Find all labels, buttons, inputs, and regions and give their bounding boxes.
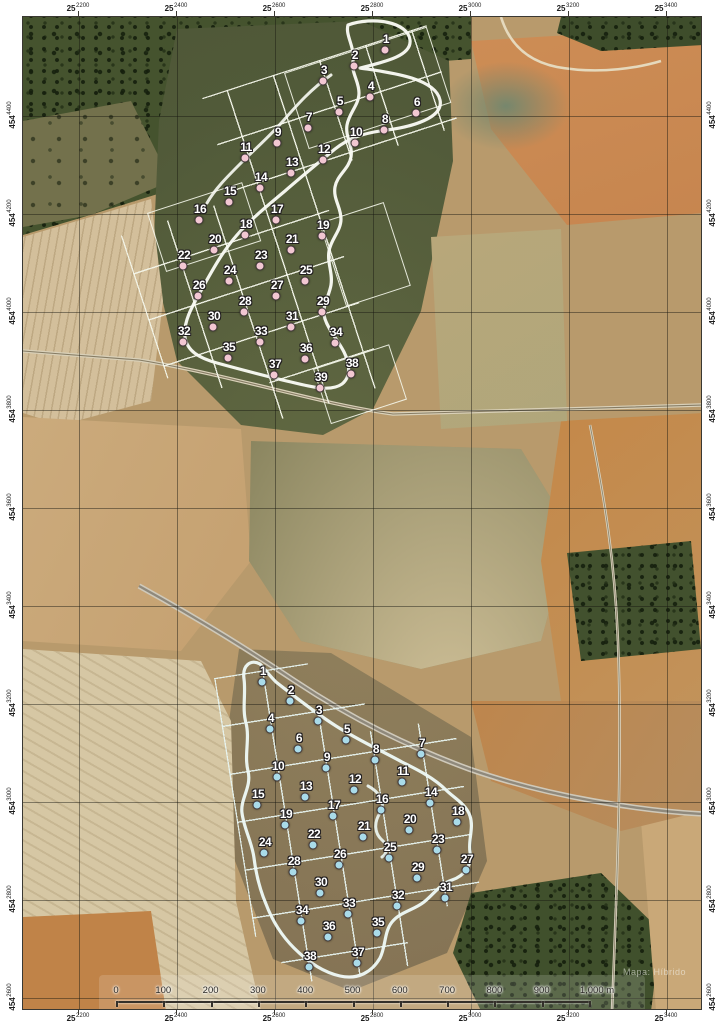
scale-bar-tick bbox=[447, 1001, 449, 1007]
survey-point-label: 3 bbox=[316, 704, 322, 716]
survey-point-37[interactable] bbox=[353, 959, 362, 968]
survey-point-37[interactable] bbox=[270, 371, 279, 380]
coordinate-label-northing-right: 4543400 bbox=[706, 583, 718, 627]
survey-point-25[interactable] bbox=[301, 277, 310, 286]
survey-point-5[interactable] bbox=[342, 736, 351, 745]
coordinate-label-northing-right: 4543600 bbox=[706, 485, 718, 529]
survey-point-13[interactable] bbox=[301, 793, 310, 802]
survey-point-15[interactable] bbox=[253, 801, 262, 810]
survey-point-11[interactable] bbox=[398, 778, 407, 787]
survey-point-label: 38 bbox=[304, 950, 316, 962]
survey-point-label: 19 bbox=[280, 808, 292, 820]
survey-point-39[interactable] bbox=[316, 384, 325, 393]
survey-point-10[interactable] bbox=[273, 773, 282, 782]
survey-point-label: 18 bbox=[240, 218, 252, 230]
survey-point-28[interactable] bbox=[289, 868, 298, 877]
grid-tick bbox=[78, 1010, 79, 1015]
survey-track-south bbox=[242, 662, 472, 977]
survey-point-5[interactable] bbox=[335, 108, 344, 117]
coordinate-label-northing-left: 4542800 bbox=[6, 877, 18, 921]
survey-point-label: 27 bbox=[271, 279, 283, 291]
grid-tick bbox=[568, 1010, 569, 1015]
survey-point-36[interactable] bbox=[301, 355, 310, 364]
scale-bar-tick bbox=[542, 1001, 544, 1007]
survey-point-label: 19 bbox=[317, 219, 329, 231]
survey-point-29[interactable] bbox=[318, 308, 327, 317]
scale-bar-tick bbox=[305, 1001, 307, 1007]
scale-bar-background bbox=[99, 975, 645, 1010]
survey-point-label: 21 bbox=[358, 820, 370, 832]
coordinate-label-northing-left: 4543200 bbox=[6, 681, 18, 725]
survey-point-label: 32 bbox=[392, 889, 404, 901]
survey-point-label: 2 bbox=[288, 684, 294, 696]
survey-point-31[interactable] bbox=[287, 323, 296, 332]
survey-point-label: 30 bbox=[315, 876, 327, 888]
survey-point-label: 5 bbox=[337, 95, 343, 107]
survey-point-28[interactable] bbox=[240, 308, 249, 317]
survey-point-label: 28 bbox=[288, 855, 300, 867]
map-page: 1234567891011121314151617181920212223242… bbox=[0, 0, 724, 1024]
survey-point-32[interactable] bbox=[393, 902, 402, 911]
survey-point-label: 6 bbox=[414, 96, 420, 108]
survey-point-label: 26 bbox=[334, 848, 346, 860]
survey-point-label: 23 bbox=[255, 249, 267, 261]
scale-bar-tick bbox=[494, 1001, 496, 1007]
survey-point-6[interactable] bbox=[412, 109, 421, 118]
survey-point-14[interactable] bbox=[426, 799, 435, 808]
survey-point-label: 37 bbox=[269, 358, 281, 370]
survey-point-30[interactable] bbox=[209, 323, 218, 332]
survey-point-label: 32 bbox=[178, 325, 190, 337]
survey-point-label: 17 bbox=[271, 203, 283, 215]
survey-point-27[interactable] bbox=[462, 866, 471, 875]
survey-point-label: 16 bbox=[194, 203, 206, 215]
survey-point-8[interactable] bbox=[380, 126, 389, 135]
survey-point-19[interactable] bbox=[281, 821, 290, 830]
survey-point-15[interactable] bbox=[225, 198, 234, 207]
survey-point-11[interactable] bbox=[241, 154, 250, 163]
survey-point-label: 3 bbox=[321, 64, 327, 76]
survey-point-label: 30 bbox=[208, 310, 220, 322]
survey-point-21[interactable] bbox=[287, 246, 296, 255]
survey-point-13[interactable] bbox=[287, 169, 296, 178]
survey-point-label: 33 bbox=[343, 897, 355, 909]
survey-point-19[interactable] bbox=[318, 232, 327, 241]
survey-point-29[interactable] bbox=[413, 874, 422, 883]
scale-bar-tick bbox=[258, 1001, 260, 1007]
grid-tick bbox=[372, 1010, 373, 1015]
survey-point-23[interactable] bbox=[256, 262, 265, 271]
coordinate-label-northing-right: 4544400 bbox=[706, 93, 718, 137]
survey-point-35[interactable] bbox=[373, 929, 382, 938]
survey-point-2[interactable] bbox=[286, 697, 295, 706]
grid-tick bbox=[176, 11, 177, 16]
survey-point-35[interactable] bbox=[224, 354, 233, 363]
survey-point-1[interactable] bbox=[381, 46, 390, 55]
survey-point-label: 29 bbox=[412, 861, 424, 873]
survey-point-label: 35 bbox=[372, 916, 384, 928]
survey-point-27[interactable] bbox=[272, 292, 281, 301]
grid-tick bbox=[666, 1010, 667, 1015]
survey-point-label: 21 bbox=[286, 233, 298, 245]
survey-point-label: 38 bbox=[346, 357, 358, 369]
coordinate-label-northing-left: 4542600 bbox=[6, 975, 18, 1019]
survey-point-label: 11 bbox=[240, 141, 252, 153]
survey-point-6[interactable] bbox=[294, 745, 303, 754]
scale-bar-label: 700 bbox=[439, 985, 455, 996]
grid-tick bbox=[274, 1010, 275, 1015]
survey-point-label: 10 bbox=[350, 126, 362, 138]
coordinate-label-northing-left: 4543800 bbox=[6, 387, 18, 431]
scale-bar-tick bbox=[353, 1001, 355, 1007]
survey-point-9[interactable] bbox=[273, 139, 282, 148]
survey-point-label: 24 bbox=[224, 264, 236, 276]
survey-point-label: 31 bbox=[286, 310, 298, 322]
survey-point-label: 12 bbox=[349, 773, 361, 785]
survey-point-17[interactable] bbox=[329, 812, 338, 821]
scale-bar-label: 500 bbox=[345, 985, 361, 996]
scale-bar-label: 0 bbox=[113, 985, 118, 996]
scale-bar-end-label: 1,000 m bbox=[580, 985, 614, 996]
survey-point-label: 9 bbox=[275, 126, 281, 138]
survey-point-7[interactable] bbox=[417, 750, 426, 759]
survey-point-38[interactable] bbox=[305, 963, 314, 972]
scale-bar-tick bbox=[211, 1001, 213, 1007]
survey-point-16[interactable] bbox=[377, 806, 386, 815]
survey-point-label: 4 bbox=[268, 712, 274, 724]
survey-point-label: 16 bbox=[376, 793, 388, 805]
coordinate-label-northing-left: 4544200 bbox=[6, 191, 18, 235]
survey-point-label: 23 bbox=[432, 833, 444, 845]
survey-point-label: 12 bbox=[318, 143, 330, 155]
survey-point-36[interactable] bbox=[324, 933, 333, 942]
coordinate-label-northing-left: 4543000 bbox=[6, 779, 18, 823]
survey-point-23[interactable] bbox=[433, 846, 442, 855]
survey-point-label: 31 bbox=[440, 881, 452, 893]
survey-point-9[interactable] bbox=[322, 764, 331, 773]
survey-point-24[interactable] bbox=[260, 849, 269, 858]
survey-point-21[interactable] bbox=[359, 833, 368, 842]
scale-bar-label: 100 bbox=[155, 985, 171, 996]
coordinate-label-northing-right: 4542800 bbox=[706, 877, 718, 921]
coordinate-label-northing-left: 4544400 bbox=[6, 93, 18, 137]
coordinate-label-northing-right: 4543000 bbox=[706, 779, 718, 823]
survey-point-label: 15 bbox=[224, 185, 236, 197]
survey-point-label: 20 bbox=[404, 813, 416, 825]
survey-point-4[interactable] bbox=[366, 93, 375, 102]
survey-point-1[interactable] bbox=[258, 678, 267, 687]
scale-bar-tick bbox=[163, 1001, 165, 1007]
grid-tick bbox=[470, 11, 471, 16]
survey-point-label: 9 bbox=[324, 751, 330, 763]
grid-tick bbox=[372, 11, 373, 16]
survey-point-label: 28 bbox=[239, 295, 251, 307]
survey-point-label: 33 bbox=[255, 325, 267, 337]
watermark: Mapa: Híbrido bbox=[623, 967, 686, 977]
survey-point-18[interactable] bbox=[453, 818, 462, 827]
survey-point-3[interactable] bbox=[319, 77, 328, 86]
survey-point-7[interactable] bbox=[304, 124, 313, 133]
survey-point-label: 8 bbox=[373, 743, 379, 755]
survey-point-label: 24 bbox=[259, 836, 271, 848]
grid-tick bbox=[470, 1010, 471, 1015]
survey-point-20[interactable] bbox=[210, 246, 219, 255]
survey-point-label: 25 bbox=[300, 264, 312, 276]
survey-point-label: 14 bbox=[255, 171, 267, 183]
survey-point-33[interactable] bbox=[256, 338, 265, 347]
coordinate-label-northing-left: 4544000 bbox=[6, 289, 18, 333]
survey-point-34[interactable] bbox=[331, 339, 340, 348]
survey-point-26[interactable] bbox=[335, 861, 344, 870]
survey-tracks-layer bbox=[22, 16, 702, 1010]
survey-point-20[interactable] bbox=[405, 826, 414, 835]
survey-point-24[interactable] bbox=[225, 277, 234, 286]
survey-point-2[interactable] bbox=[350, 62, 359, 71]
survey-point-33[interactable] bbox=[344, 910, 353, 919]
scale-bar-label: 200 bbox=[203, 985, 219, 996]
survey-point-label: 35 bbox=[223, 341, 235, 353]
scale-bar-label: 600 bbox=[392, 985, 408, 996]
scale-bar-label: 900 bbox=[534, 985, 550, 996]
survey-point-16[interactable] bbox=[195, 216, 204, 225]
survey-point-label: 15 bbox=[252, 788, 264, 800]
survey-point-38[interactable] bbox=[347, 370, 356, 379]
survey-point-3[interactable] bbox=[314, 717, 323, 726]
coordinate-label-northing-left: 4543600 bbox=[6, 485, 18, 529]
survey-point-label: 1 bbox=[383, 33, 389, 45]
coordinate-label-northing-right: 4543200 bbox=[706, 681, 718, 725]
scale-bar-tick bbox=[400, 1001, 402, 1007]
survey-point-label: 2 bbox=[352, 49, 358, 61]
survey-point-26[interactable] bbox=[194, 292, 203, 301]
grid-tick bbox=[78, 11, 79, 16]
survey-point-14[interactable] bbox=[256, 184, 265, 193]
scale-bar-label: 400 bbox=[297, 985, 313, 996]
survey-point-label: 10 bbox=[272, 760, 284, 772]
survey-point-12[interactable] bbox=[350, 786, 359, 795]
survey-point-label: 29 bbox=[317, 295, 329, 307]
survey-point-12[interactable] bbox=[319, 156, 328, 165]
survey-point-label: 22 bbox=[308, 828, 320, 840]
coordinate-label-northing-right: 4542600 bbox=[706, 975, 718, 1019]
survey-point-label: 11 bbox=[397, 765, 409, 777]
scale-bar-tick bbox=[589, 1001, 591, 1007]
survey-point-22[interactable] bbox=[309, 841, 318, 850]
survey-point-label: 7 bbox=[306, 111, 312, 123]
survey-point-34[interactable] bbox=[297, 917, 306, 926]
survey-point-label: 36 bbox=[300, 342, 312, 354]
survey-point-label: 37 bbox=[352, 946, 364, 958]
survey-point-label: 13 bbox=[300, 780, 312, 792]
survey-point-label: 6 bbox=[296, 732, 302, 744]
survey-point-label: 4 bbox=[368, 80, 374, 92]
survey-point-label: 22 bbox=[178, 249, 190, 261]
survey-point-label: 5 bbox=[344, 723, 350, 735]
scale-bar-tick bbox=[116, 1001, 118, 1007]
satellite-basemap: 1234567891011121314151617181920212223242… bbox=[22, 16, 702, 1010]
survey-point-label: 8 bbox=[382, 113, 388, 125]
survey-point-label: 34 bbox=[296, 904, 308, 916]
survey-point-label: 20 bbox=[209, 233, 221, 245]
survey-point-label: 26 bbox=[193, 279, 205, 291]
survey-point-10[interactable] bbox=[351, 139, 360, 148]
survey-point-label: 14 bbox=[425, 786, 437, 798]
survey-point-label: 36 bbox=[323, 920, 335, 932]
survey-point-31[interactable] bbox=[441, 894, 450, 903]
grid-tick bbox=[274, 11, 275, 16]
survey-point-label: 34 bbox=[330, 326, 342, 338]
survey-point-30[interactable] bbox=[316, 889, 325, 898]
survey-point-label: 18 bbox=[452, 805, 464, 817]
survey-track-north bbox=[185, 21, 441, 388]
survey-point-18[interactable] bbox=[241, 231, 250, 240]
survey-point-17[interactable] bbox=[272, 216, 281, 225]
coordinate-label-northing-right: 4544000 bbox=[706, 289, 718, 333]
coordinate-label-northing-right: 4544200 bbox=[706, 191, 718, 235]
survey-point-label: 39 bbox=[315, 371, 327, 383]
scale-bar-label: 300 bbox=[250, 985, 266, 996]
grid-tick bbox=[666, 11, 667, 16]
survey-point-label: 1 bbox=[260, 665, 266, 677]
survey-point-32[interactable] bbox=[179, 338, 188, 347]
coordinate-label-northing-left: 4543400 bbox=[6, 583, 18, 627]
coordinate-label-northing-right: 4543800 bbox=[706, 387, 718, 431]
survey-point-label: 13 bbox=[286, 156, 298, 168]
survey-point-8[interactable] bbox=[371, 756, 380, 765]
survey-point-label: 17 bbox=[328, 799, 340, 811]
survey-point-label: 7 bbox=[419, 737, 425, 749]
grid-tick bbox=[176, 1010, 177, 1015]
survey-point-label: 27 bbox=[461, 853, 473, 865]
survey-point-22[interactable] bbox=[179, 262, 188, 271]
scale-bar-label: 800 bbox=[486, 985, 502, 996]
map-frame: 1234567891011121314151617181920212223242… bbox=[22, 16, 702, 1010]
survey-point-4[interactable] bbox=[266, 725, 275, 734]
survey-point-25[interactable] bbox=[385, 854, 394, 863]
survey-point-label: 25 bbox=[384, 841, 396, 853]
grid-tick bbox=[568, 11, 569, 16]
